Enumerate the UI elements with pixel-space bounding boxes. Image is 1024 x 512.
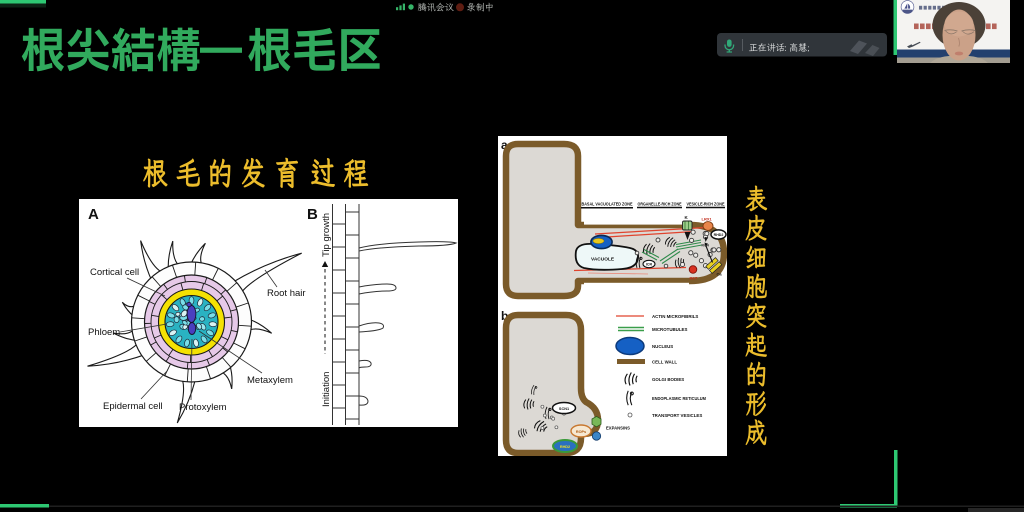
svg-text:VACUOLE: VACUOLE xyxy=(591,257,615,263)
svg-text:Ca: Ca xyxy=(717,272,723,277)
svg-text:MICROTUBULES: MICROTUBULES xyxy=(652,327,687,332)
svg-text:Cortical cell: Cortical cell xyxy=(90,267,139,278)
svg-text:Protoxylem: Protoxylem xyxy=(179,402,227,413)
svg-text:RHD2: RHD2 xyxy=(560,445,570,449)
svg-text:EXPANSINS: EXPANSINS xyxy=(606,426,630,431)
svg-text:Tip growth: Tip growth xyxy=(321,213,332,257)
svg-text:CELL WALL: CELL WALL xyxy=(652,360,677,365)
svg-text:BASAL VACUOLATED ZONE: BASAL VACUOLATED ZONE xyxy=(582,202,633,207)
svg-text:ACTIN MICROFIBRILS: ACTIN MICROFIBRILS xyxy=(652,314,698,319)
svg-text:ENDOPLASMIC RETICULUM: ENDOPLASMIC RETICULUM xyxy=(652,396,706,401)
svg-text:Epidermal cell: Epidermal cell xyxy=(103,401,163,412)
svg-text:RET: RET xyxy=(690,276,699,281)
svg-text:SCN1: SCN1 xyxy=(559,407,569,411)
svg-text:GOLGI BODIES: GOLGI BODIES xyxy=(652,377,684,382)
svg-text:Root hair: Root hair xyxy=(267,288,306,299)
svg-text:Metaxylem: Metaxylem xyxy=(247,375,293,386)
svg-text:TRANSPORT VESICLES: TRANSPORT VESICLES xyxy=(652,413,702,418)
svg-text:LRX1: LRX1 xyxy=(702,217,713,222)
svg-text:Initiation: Initiation xyxy=(321,372,332,407)
svg-text:VESICLE-RICH ZONE: VESICLE-RICH ZONE xyxy=(687,202,725,207)
svg-text:RHD2: RHD2 xyxy=(714,233,724,237)
svg-text:A: A xyxy=(88,206,99,223)
svg-text:ICR: ICR xyxy=(646,263,653,267)
svg-text:NUCLEUS: NUCLEUS xyxy=(652,344,673,349)
svg-text:ROPs: ROPs xyxy=(576,430,586,434)
svg-text:ORGANELLE-RICH ZONE: ORGANELLE-RICH ZONE xyxy=(638,202,682,207)
svg-text:Phloem: Phloem xyxy=(88,327,120,338)
svg-text:B: B xyxy=(307,206,318,223)
